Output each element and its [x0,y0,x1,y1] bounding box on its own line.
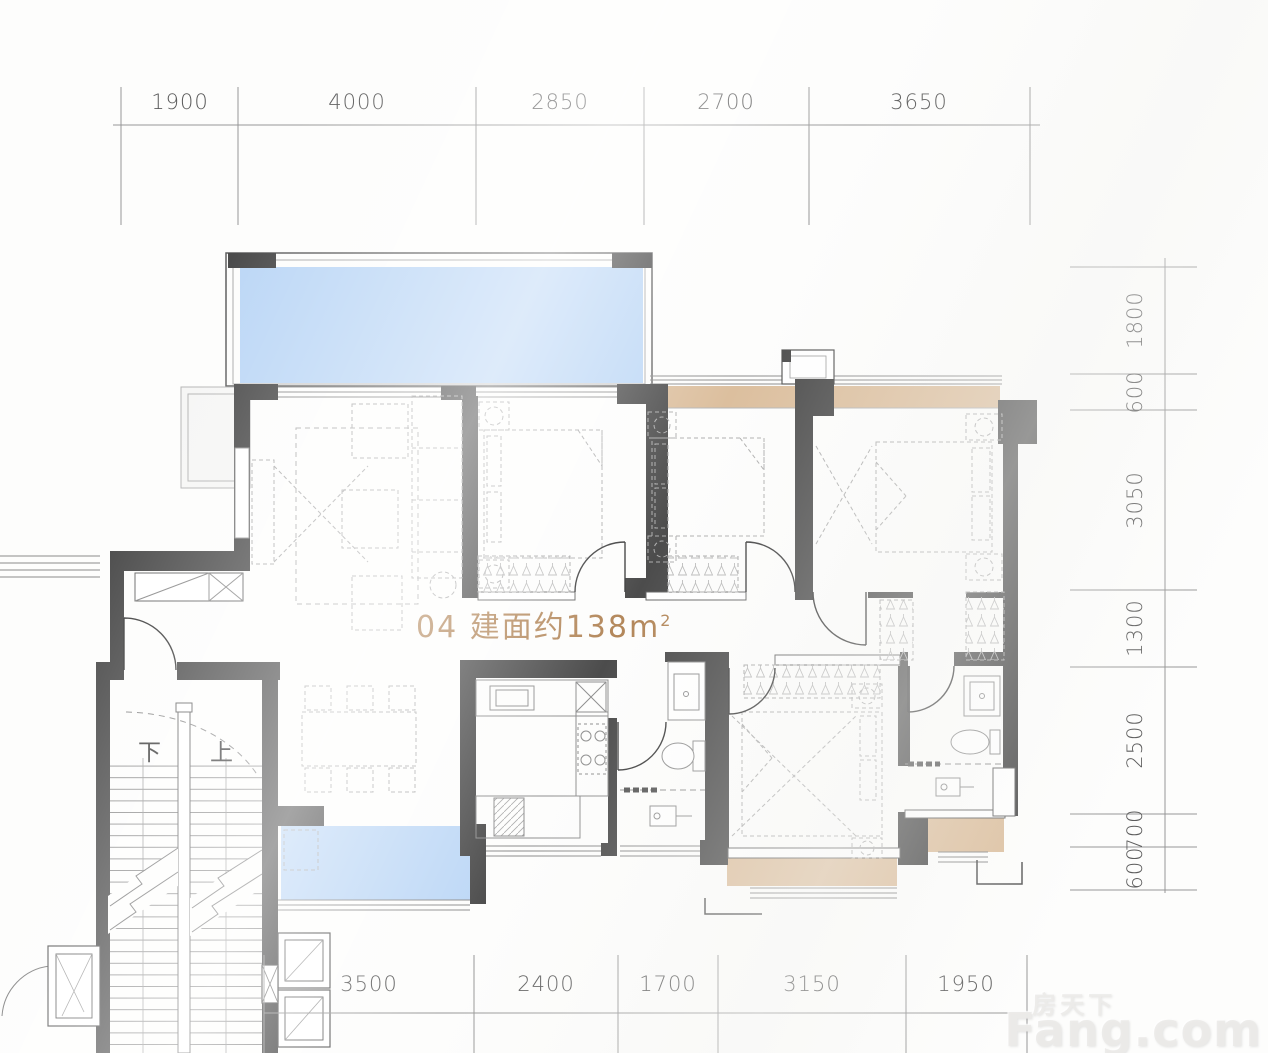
unit-area-label: 04 建面约138m2 [416,602,672,646]
unit-area-sup: 2 [660,611,672,630]
dim-right-3: 3050 [1123,471,1147,528]
floor-plan-canvas: 1900 4000 2850 2700 3650 1800 600 3050 1… [0,0,1268,1053]
floor-plan-drawing [0,0,1268,1053]
dim-top-1: 1900 [151,90,208,114]
dim-bottom-2: 2400 [517,972,574,996]
flue-box [782,350,834,384]
dim-bottom-4: 3150 [783,972,840,996]
dim-right-4: 1300 [1123,599,1147,656]
stairs-down-label: 下 [138,733,161,767]
entry-cabinet [135,573,243,601]
watermark: 房天下 Fang.com [1004,1007,1262,1053]
glass-areas [240,267,643,900]
watermark-cn: 房天下 [1032,993,1116,1017]
staircase [108,703,262,1053]
dim-bottom-3: 1700 [639,972,696,996]
dim-right-7: 600 [1123,846,1147,889]
dim-right-1: 1800 [1123,291,1147,348]
dim-top-3: 2850 [531,90,588,114]
dim-top-2: 4000 [328,90,385,114]
dim-top-4: 2700 [697,90,754,114]
kitchen-fixtures [476,680,608,838]
dim-bottom-5: 1950 [937,972,994,996]
unit-area-text: 04 建面约138m [416,610,660,645]
dim-top-5: 3650 [890,90,947,114]
stairs-up-label: 上 [210,733,233,767]
dim-right-6: 700 [1123,808,1147,851]
dim-right-2: 600 [1123,370,1147,413]
dim-right-5: 2500 [1123,711,1147,768]
dim-bottom-1: 3500 [340,972,397,996]
